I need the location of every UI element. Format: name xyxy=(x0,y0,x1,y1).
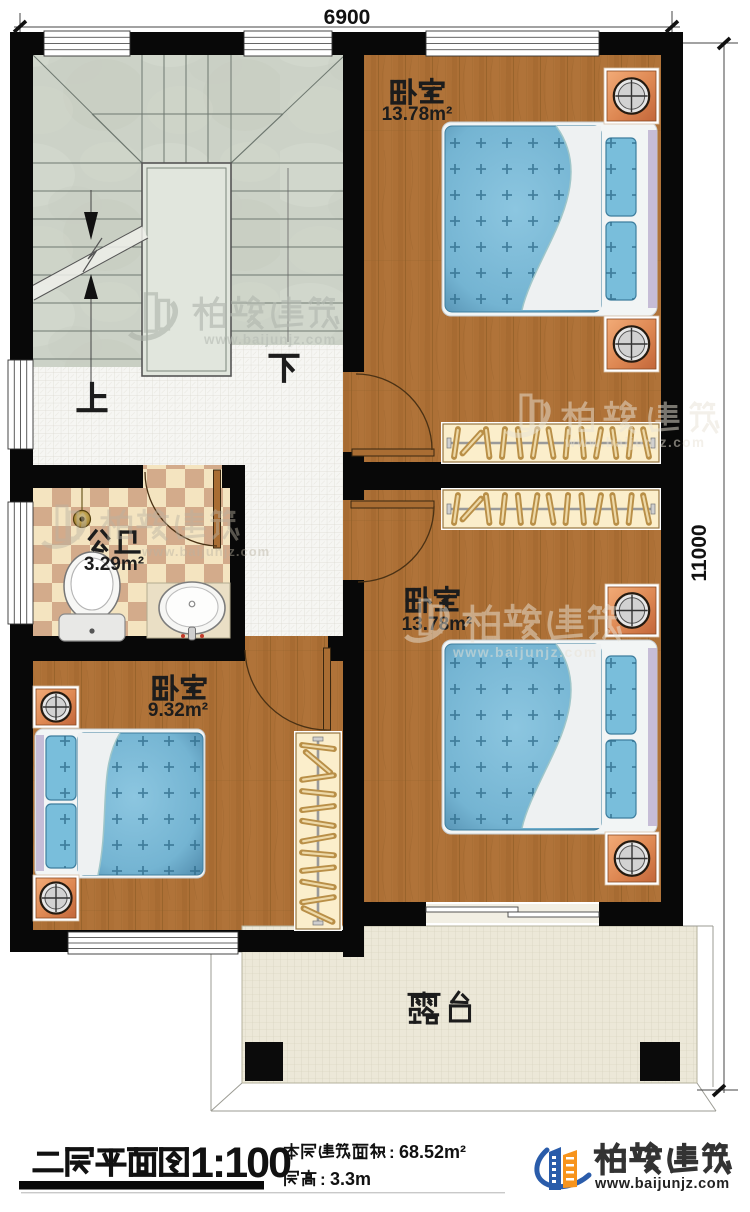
svg-text:www.baijunjz.com: www.baijunjz.com xyxy=(564,435,706,450)
svg-text:68.52m²: 68.52m² xyxy=(399,1142,466,1162)
svg-text:11000: 11000 xyxy=(688,524,711,581)
svg-text:www.baijunjz.com: www.baijunjz.com xyxy=(452,644,598,660)
svg-text:www.baijunjz.com: www.baijunjz.com xyxy=(203,332,337,347)
svg-text:3.3m: 3.3m xyxy=(330,1169,371,1189)
svg-text:13.78m²: 13.78m² xyxy=(382,104,453,125)
svg-text:6900: 6900 xyxy=(324,6,371,29)
svg-text:9.32m²: 9.32m² xyxy=(148,700,208,721)
svg-text::: : xyxy=(389,1143,395,1162)
svg-text:www.baijunjz.com: www.baijunjz.com xyxy=(594,1176,730,1192)
svg-text::: : xyxy=(320,1170,326,1189)
svg-text:1:100: 1:100 xyxy=(190,1139,291,1187)
svg-text:www.baijunjz.com: www.baijunjz.com xyxy=(141,544,270,559)
svg-text:3.29m²: 3.29m² xyxy=(84,554,144,575)
